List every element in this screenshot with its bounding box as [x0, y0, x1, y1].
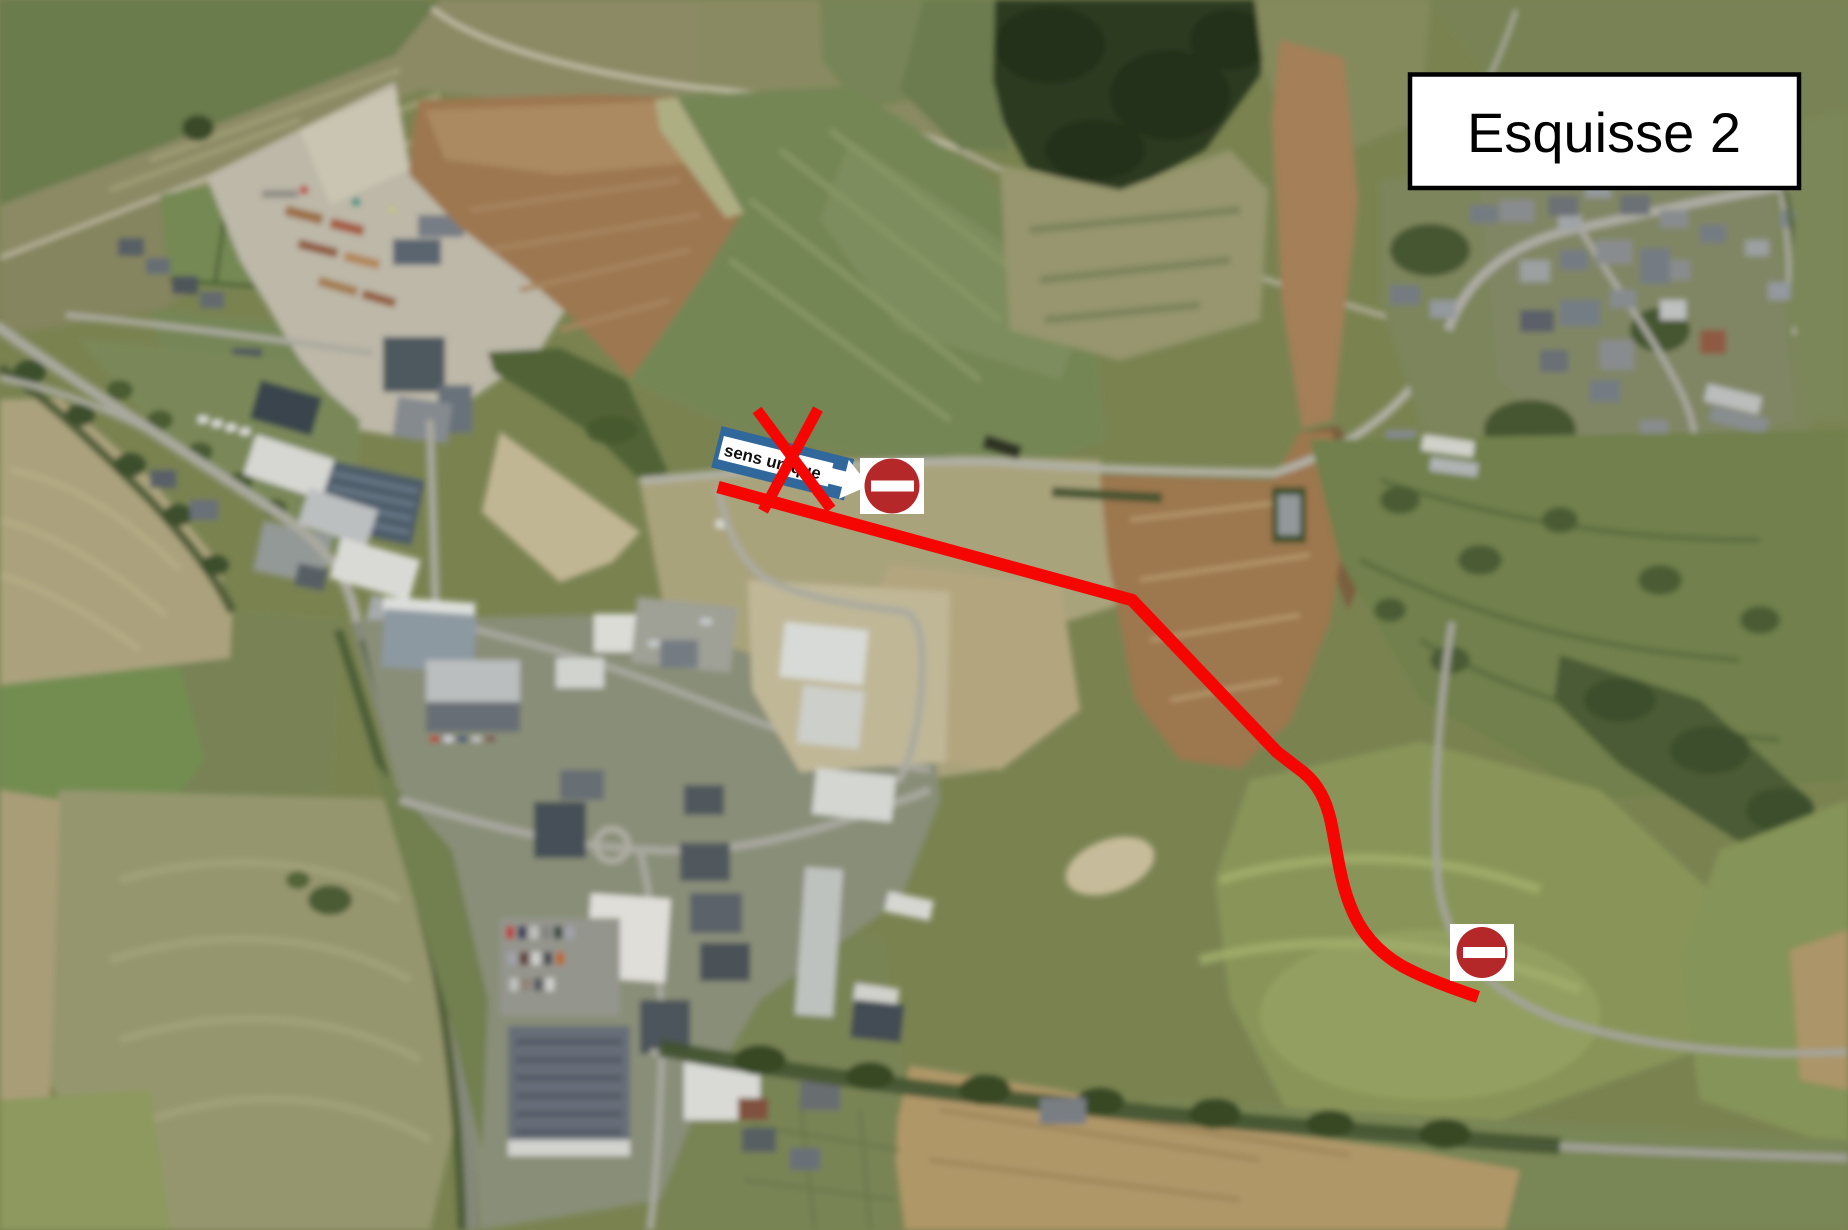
svg-text:Esquisse 2: Esquisse 2: [1467, 101, 1741, 164]
